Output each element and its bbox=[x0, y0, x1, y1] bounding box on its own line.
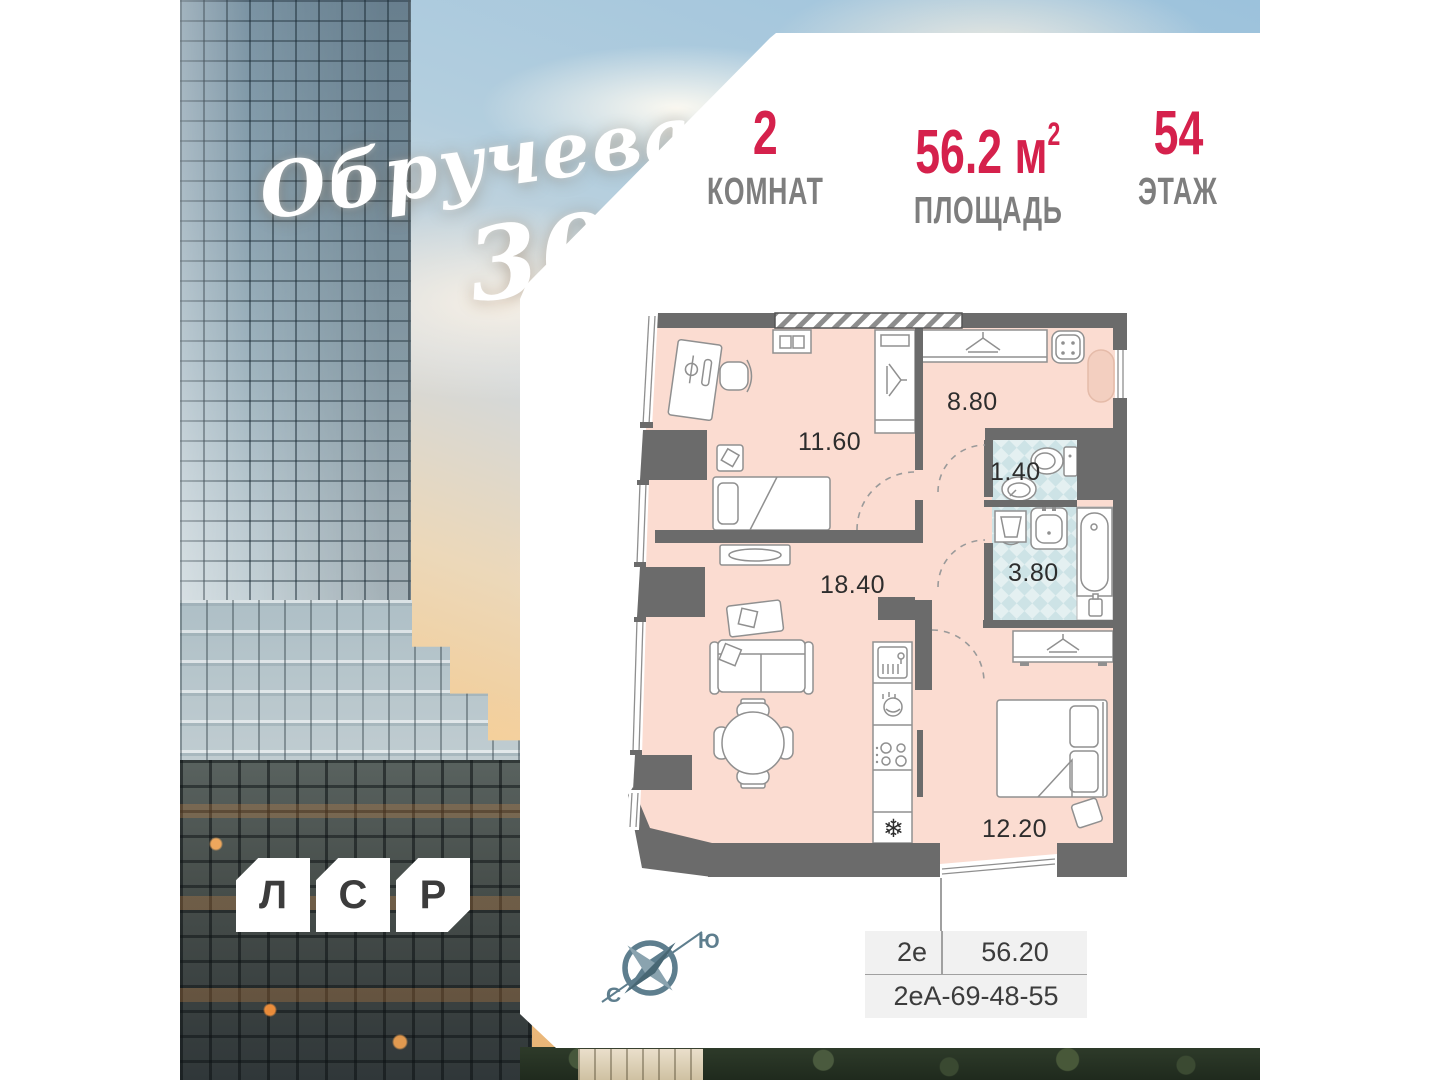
single-bed bbox=[713, 477, 830, 530]
room-label-wc: 1.40 bbox=[990, 458, 1041, 486]
desk bbox=[668, 339, 722, 420]
unit-type-cell: 2е bbox=[865, 937, 941, 968]
tv-stand bbox=[720, 545, 790, 565]
kitchen-units: ❄ bbox=[873, 642, 912, 843]
hatched-wall bbox=[775, 313, 962, 328]
area-label: ПЛОЩАДЬ bbox=[914, 191, 1063, 231]
bath-sink bbox=[1031, 505, 1067, 549]
double-bed bbox=[997, 700, 1107, 797]
floor-plan: ❄ bbox=[620, 300, 1170, 925]
room-label-bedroom-2: 12.20 bbox=[982, 815, 1047, 843]
sofa bbox=[710, 640, 813, 694]
unit-area-cell: 56.20 bbox=[941, 931, 1087, 974]
lsr-tile-s: С bbox=[316, 858, 390, 932]
room-label-hallway: 8.80 bbox=[947, 388, 998, 416]
low-building bbox=[578, 1047, 703, 1080]
washing-machine bbox=[1052, 331, 1084, 363]
rooms-value: 2 bbox=[753, 100, 778, 168]
flat-card: Обручева 30 2 КОМНАТ 56.2 м2 ПЛОЩАДЬ 54 … bbox=[0, 0, 1440, 1080]
stat-floor: 54 ЭТАЖ bbox=[1078, 100, 1278, 212]
tall-wardrobe bbox=[875, 330, 915, 433]
bedroom-wardrobe bbox=[1013, 631, 1113, 666]
room-label-living: 18.40 bbox=[820, 571, 885, 599]
room-label-bathroom: 3.80 bbox=[1008, 559, 1059, 587]
unit-info-table: 2е 56.20 2еА-69-48-55 bbox=[865, 931, 1087, 1018]
stat-rooms: 2 КОМНАТ bbox=[665, 100, 865, 212]
lsr-logo: Л С Р bbox=[236, 858, 470, 932]
unit-code-cell: 2еА-69-48-55 bbox=[865, 975, 1087, 1018]
snowflake-icon: ❄ bbox=[883, 815, 904, 843]
tower-facade bbox=[180, 0, 411, 650]
floor-label: ЭТАЖ bbox=[1138, 172, 1218, 212]
laundry-basket bbox=[995, 511, 1026, 545]
compass-north-label: С bbox=[606, 984, 621, 1008]
lsr-tile-l: Л bbox=[236, 858, 310, 932]
area-value: 56.2 м2 bbox=[915, 100, 1060, 187]
coffee-table bbox=[726, 600, 783, 637]
floor-value: 54 bbox=[1153, 100, 1203, 168]
compass-south-label: Ю bbox=[698, 930, 720, 954]
room-label-bedroom-1: 11.60 bbox=[798, 428, 861, 456]
rooms-label: КОМНАТ bbox=[707, 172, 824, 212]
hall-wardrobe bbox=[920, 330, 1047, 362]
bedside-cabinet bbox=[717, 445, 743, 471]
bookshelf bbox=[773, 330, 811, 353]
bathtub bbox=[1077, 508, 1112, 596]
hall-ottoman bbox=[1088, 350, 1114, 402]
lsr-tile-r: Р bbox=[396, 858, 470, 932]
